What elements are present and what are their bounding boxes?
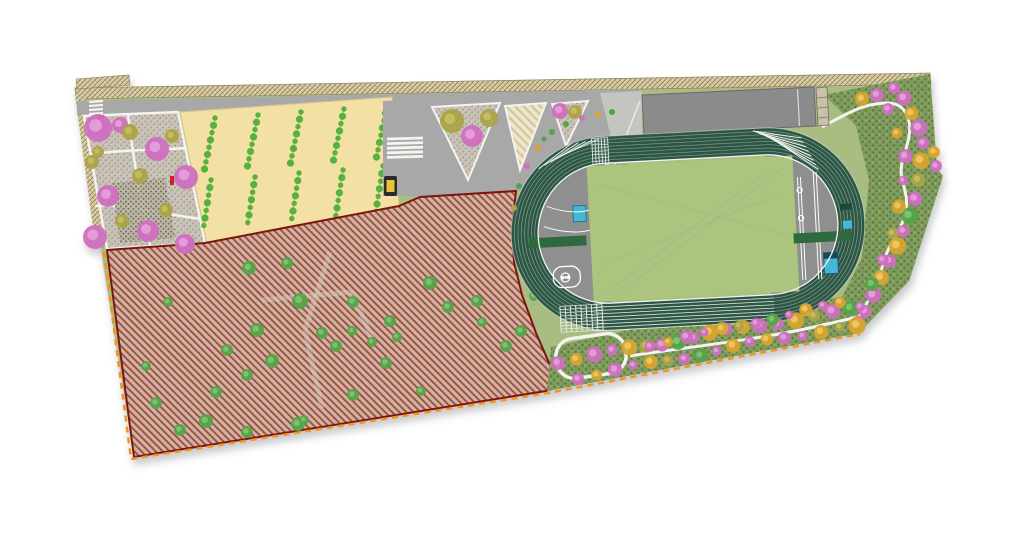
plant bbox=[333, 204, 340, 211]
garden-trees-pink-tree-highlight bbox=[178, 169, 189, 180]
shrub bbox=[595, 111, 601, 117]
garden-trees-olive-tree-highlight bbox=[125, 127, 132, 134]
zebra-crossing-line bbox=[387, 143, 423, 144]
band-trees-bottom-2-tree-highlight bbox=[714, 348, 718, 352]
site-plan-layers bbox=[75, 73, 943, 459]
band-trees-right-1-tree-highlight bbox=[914, 175, 920, 181]
reserved-trees-tree-highlight bbox=[283, 259, 288, 264]
corner-trees-tree-highlight bbox=[932, 162, 937, 167]
garden-trees-olive-tree-highlight bbox=[168, 132, 174, 138]
plant bbox=[245, 211, 252, 218]
reserved-trees-tree-highlight bbox=[418, 388, 423, 393]
reserved-trees-tree-highlight bbox=[502, 342, 507, 347]
zebra-crossing-line bbox=[387, 152, 423, 153]
plant bbox=[289, 216, 294, 221]
band-trees-bottom-1-tree-highlight bbox=[572, 355, 578, 361]
shrub bbox=[524, 163, 530, 169]
garden-trees-pink-tree-highlight bbox=[115, 120, 122, 127]
water-station bbox=[843, 220, 852, 228]
reserved-trees-tree-highlight bbox=[243, 371, 248, 376]
band-trees-right-1-tree-highlight bbox=[851, 320, 859, 328]
plant bbox=[201, 223, 206, 228]
band-trees-bottom-3-tree-highlight bbox=[647, 343, 652, 348]
reserved-trees-tree-highlight bbox=[349, 328, 354, 333]
plant bbox=[204, 208, 209, 213]
garden-trees-pink-tree-highlight bbox=[141, 224, 151, 234]
grandstand-building bbox=[642, 87, 816, 134]
band-trees-right-1-tree-highlight bbox=[904, 211, 911, 218]
band-trees-bottom-3-tree-highlight bbox=[753, 320, 758, 325]
band-trees-bottom-3-tree-highlight bbox=[802, 306, 808, 312]
band-trees-bottom-1-tree-highlight bbox=[658, 340, 664, 346]
plant bbox=[330, 157, 337, 164]
reserved-trees-tree-highlight bbox=[294, 420, 300, 426]
shrub bbox=[563, 121, 569, 127]
garden-trees-olive-tree-highlight bbox=[88, 158, 94, 164]
band-trees-right-1-tree-highlight bbox=[868, 290, 875, 297]
plant bbox=[378, 133, 383, 138]
band-trees-bottom-1-tree-highlight bbox=[589, 349, 596, 356]
plant bbox=[292, 192, 299, 199]
band-trees-right-2-tree-highlight bbox=[868, 280, 874, 286]
zebra-crossing-line bbox=[387, 156, 423, 157]
band-trees-right-1-tree-highlight bbox=[907, 109, 913, 115]
plant bbox=[209, 130, 214, 135]
shrub bbox=[609, 109, 615, 115]
plant bbox=[376, 194, 381, 199]
plant bbox=[250, 181, 257, 188]
plant bbox=[341, 106, 346, 111]
band-trees-bottom-2-tree-highlight bbox=[817, 328, 823, 334]
plant bbox=[248, 205, 253, 210]
band-trees-bottom-2-tree-highlight bbox=[664, 357, 669, 362]
shrub bbox=[511, 205, 517, 211]
band-trees-bottom-2-tree-highlight bbox=[780, 334, 786, 340]
band-trees-right-1-tree-highlight bbox=[899, 93, 906, 100]
high-jump-mat bbox=[573, 205, 587, 222]
plant bbox=[204, 151, 211, 158]
plant bbox=[289, 153, 294, 158]
plant bbox=[289, 207, 296, 214]
plant bbox=[206, 193, 211, 198]
plant bbox=[375, 147, 380, 152]
band-trees-bottom-2-tree-highlight bbox=[837, 324, 841, 328]
band-trees-right-2-tree-highlight bbox=[901, 152, 907, 158]
band-trees-bottom-1-tree-highlight bbox=[673, 337, 680, 344]
plant bbox=[373, 200, 380, 207]
band-trees-right-1-tree-highlight bbox=[919, 139, 925, 145]
reserved-trees-tree-highlight bbox=[295, 296, 302, 303]
plant bbox=[290, 145, 297, 152]
plant bbox=[335, 136, 340, 141]
plaza-trees-tree-highlight bbox=[444, 113, 455, 124]
plant bbox=[338, 121, 343, 126]
corner-trees-tree-highlight bbox=[858, 95, 864, 101]
reserved-trees-tree-highlight bbox=[444, 303, 449, 308]
band-trees-bottom-2-tree-highlight bbox=[574, 375, 579, 380]
reserved-trees-tree-highlight bbox=[301, 417, 306, 422]
plant bbox=[339, 113, 346, 120]
reserved-trees-tree-highlight bbox=[253, 326, 259, 332]
red-marker-2 bbox=[170, 176, 174, 185]
site-plan-canvas bbox=[0, 0, 1024, 541]
reserved-trees-tree-highlight bbox=[386, 317, 391, 322]
plant bbox=[336, 189, 343, 196]
plant bbox=[246, 156, 251, 161]
garden-trees-pink-tree-highlight bbox=[101, 189, 111, 199]
plant bbox=[287, 160, 294, 167]
band-trees-bottom-1-tree-highlight bbox=[554, 359, 560, 365]
zebra-crossing-line bbox=[387, 138, 423, 139]
band-trees-right-1-tree-highlight bbox=[911, 194, 918, 201]
plant bbox=[244, 163, 251, 170]
plant bbox=[210, 122, 217, 129]
reserved-trees-tree-highlight bbox=[382, 359, 387, 364]
reserved-trees-tree-highlight bbox=[473, 297, 478, 302]
plant bbox=[248, 196, 255, 203]
plant bbox=[247, 148, 254, 155]
band-trees-bottom-2-tree-highlight bbox=[746, 338, 751, 343]
crosswalk-west-line bbox=[89, 105, 103, 106]
plant bbox=[338, 174, 345, 181]
band-trees-bottom-2-tree-highlight bbox=[763, 336, 769, 342]
band-trees-bottom-3-tree-highlight bbox=[665, 339, 669, 343]
plant bbox=[378, 179, 383, 184]
building-annex bbox=[816, 87, 829, 126]
plaza-trees-tree-highlight bbox=[465, 129, 475, 139]
garden-trees-olive-tree-highlight bbox=[94, 148, 99, 153]
plant bbox=[201, 214, 208, 221]
reserved-trees-tree-highlight bbox=[426, 279, 432, 285]
plant bbox=[206, 145, 211, 150]
reserved-trees-tree-highlight bbox=[245, 264, 251, 270]
plaza-trees-tree-highlight bbox=[571, 108, 577, 114]
band-trees-right-1-tree-highlight bbox=[899, 227, 905, 233]
garden-trees-pink-tree-highlight bbox=[149, 141, 160, 152]
reserved-trees-tree-highlight bbox=[394, 334, 399, 339]
plant bbox=[252, 174, 257, 179]
reserved-trees-tree-highlight bbox=[517, 327, 522, 332]
plant bbox=[293, 130, 300, 137]
plant bbox=[294, 177, 301, 184]
plant bbox=[208, 177, 213, 182]
plant bbox=[333, 142, 340, 149]
plant bbox=[340, 167, 345, 172]
plant bbox=[204, 199, 211, 206]
garden-trees-olive-tree-highlight bbox=[162, 206, 168, 212]
band-trees-bottom-3-tree-highlight bbox=[769, 316, 775, 322]
reserved-trees-tree-highlight bbox=[243, 428, 248, 433]
reserved-trees-tree-highlight bbox=[349, 391, 354, 396]
plant bbox=[250, 133, 257, 140]
reserved-trees-tree-highlight bbox=[318, 329, 323, 334]
band-trees-bottom-2-tree-highlight bbox=[630, 362, 634, 366]
plant bbox=[298, 109, 303, 114]
plant bbox=[249, 142, 254, 147]
band-trees-right-2-tree-highlight bbox=[894, 202, 900, 208]
band-trees-bottom-2-tree-highlight bbox=[681, 355, 686, 360]
reserved-trees-tree-highlight bbox=[479, 319, 484, 324]
reserved-trees-tree-highlight bbox=[349, 298, 354, 303]
plant bbox=[245, 220, 250, 225]
band-trees-bottom-2-tree-highlight bbox=[799, 333, 804, 338]
band-trees-right-1-tree-highlight bbox=[913, 122, 921, 130]
corner-trees-tree-highlight bbox=[873, 91, 879, 97]
band-trees-bottom-1-tree-highlight bbox=[608, 346, 613, 351]
band-trees-right-1-tree-highlight bbox=[892, 241, 900, 249]
plant bbox=[296, 170, 301, 175]
plant bbox=[376, 139, 383, 146]
garden-trees-olive-tree-highlight bbox=[118, 217, 124, 223]
band-trees-right-2-tree-highlight bbox=[884, 105, 889, 110]
band-trees-bottom-1-tree-highlight bbox=[846, 304, 852, 310]
shrub bbox=[542, 137, 547, 142]
plaza-trees-tree-highlight bbox=[483, 112, 491, 120]
reserved-trees-tree-highlight bbox=[212, 388, 217, 393]
plant bbox=[252, 127, 257, 132]
plant bbox=[332, 150, 337, 155]
plant bbox=[336, 127, 343, 134]
band-trees-bottom-3-tree-highlight bbox=[820, 302, 824, 306]
reserved-trees-tree-highlight bbox=[176, 426, 181, 431]
band-trees-bottom-2-tree-highlight bbox=[696, 351, 702, 357]
band-trees-right-1-tree-highlight bbox=[876, 273, 883, 280]
band-trees-bottom-1-tree-highlight bbox=[828, 306, 835, 313]
band-trees-bottom-3-tree-highlight bbox=[836, 299, 841, 304]
band-trees-right-1-tree-highlight bbox=[916, 155, 924, 163]
band-trees-bottom-3-tree-highlight bbox=[682, 333, 688, 339]
reserved-trees-tree-highlight bbox=[143, 363, 148, 368]
shrub bbox=[549, 129, 555, 135]
crosswalk-west-line bbox=[89, 113, 103, 114]
site-plan-screenshot bbox=[0, 0, 1024, 541]
plant bbox=[201, 166, 208, 173]
athletics-track bbox=[506, 123, 870, 335]
plant bbox=[294, 186, 299, 191]
plant bbox=[373, 154, 380, 161]
crosswalk-west-line bbox=[89, 101, 103, 102]
shrub bbox=[535, 145, 541, 151]
reserved-trees-tree-highlight bbox=[332, 342, 337, 347]
reserved-trees-tree-highlight bbox=[165, 299, 170, 304]
band-trees-bottom-3-tree-highlight bbox=[702, 329, 706, 333]
plant bbox=[253, 119, 260, 126]
band-trees-right-2-tree-highlight bbox=[893, 130, 898, 135]
reserved-trees-tree-highlight bbox=[369, 339, 374, 344]
plant bbox=[292, 139, 297, 144]
plant bbox=[376, 185, 383, 192]
plant bbox=[255, 112, 260, 117]
garden-trees-olive-tree-highlight bbox=[135, 171, 142, 178]
plant bbox=[292, 201, 297, 206]
plant bbox=[295, 124, 300, 129]
reserved-trees-tree-highlight bbox=[223, 346, 228, 351]
equipment-green bbox=[840, 203, 852, 210]
band-trees-bottom-2-tree-highlight bbox=[611, 365, 617, 371]
band-trees-right-2-tree-highlight bbox=[857, 303, 861, 307]
garden-trees-pink-tree-highlight bbox=[179, 238, 188, 247]
band-trees-bottom-3-tree-highlight bbox=[736, 323, 741, 328]
plant bbox=[203, 159, 208, 164]
band-trees-right-2-tree-highlight bbox=[879, 256, 884, 261]
shrub bbox=[516, 183, 522, 189]
corner-trees-tree-highlight bbox=[890, 84, 895, 89]
reserved-trees-tree-highlight bbox=[152, 399, 157, 404]
band-trees-bottom-2-tree-highlight bbox=[729, 341, 735, 347]
plant bbox=[336, 198, 341, 203]
corner-trees-tree-highlight bbox=[930, 148, 935, 153]
garden-trees-pink-tree-highlight bbox=[89, 119, 102, 132]
plant bbox=[212, 115, 217, 120]
zebra-crossing-line bbox=[387, 147, 423, 148]
plant bbox=[338, 183, 343, 188]
crosswalk-west-line bbox=[89, 109, 103, 110]
plant bbox=[296, 116, 303, 123]
band-trees-bottom-1-tree-highlight bbox=[624, 342, 631, 349]
plant bbox=[207, 136, 214, 143]
band-trees-bottom-2-tree-highlight bbox=[593, 372, 598, 377]
garden-trees-pink-tree-highlight bbox=[87, 229, 98, 240]
reserved-trees-tree-highlight bbox=[268, 357, 274, 363]
plant bbox=[250, 190, 255, 195]
band-trees-bottom-2-tree-highlight bbox=[646, 358, 652, 364]
band-trees-bottom-3-tree-highlight bbox=[786, 312, 790, 316]
band-trees-bottom-3-tree-highlight bbox=[718, 325, 724, 331]
gate-vehicle-cab bbox=[387, 180, 395, 192]
band-trees-right-2-tree-highlight bbox=[889, 230, 894, 235]
reserved-trees-tree-highlight bbox=[202, 417, 208, 423]
plaza-trees-tree-highlight bbox=[555, 106, 562, 113]
band-trees-right-2-tree-highlight bbox=[900, 177, 904, 181]
plant bbox=[206, 184, 213, 191]
